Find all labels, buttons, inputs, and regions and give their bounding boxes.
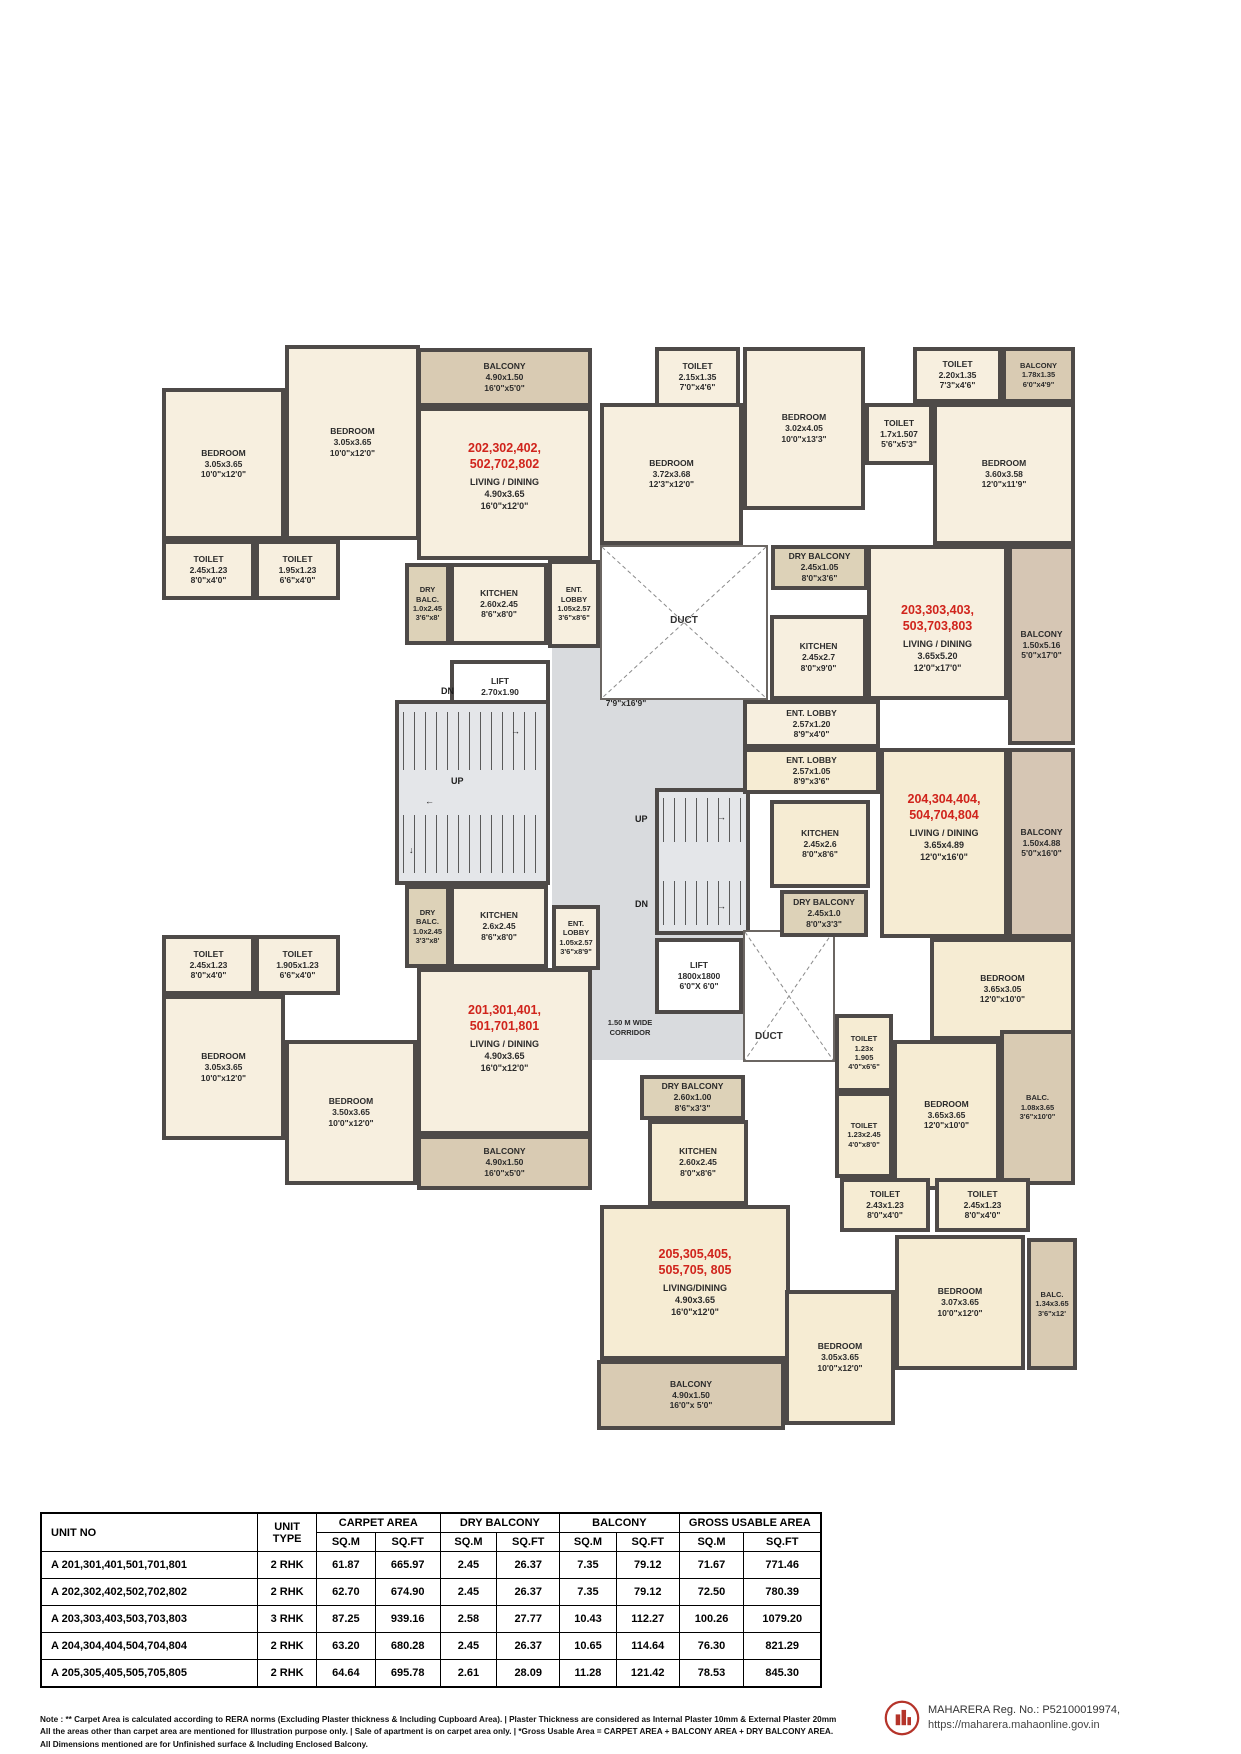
duct-label: DUCT: [755, 1031, 783, 1042]
unit-204-numbers: 204,304,404, 504,704,804: [908, 792, 981, 823]
unit-205-labels: 205,305,405, 505,705, 805 LIVING/DINING …: [600, 1205, 790, 1360]
room-balcony: BALCONY 1.50x4.88 5'0"x16'0": [1008, 748, 1075, 938]
stairs-dn-label: DN: [441, 686, 454, 696]
cell-value: 2.45: [440, 1552, 497, 1579]
duct-shaft-top: DUCT: [600, 545, 768, 700]
rera-url: https://maharera.mahaonline.gov.in: [928, 1718, 1120, 1733]
area-statement-table: UNIT NO UNIT TYPE CARPET AREA DRY BALCON…: [40, 1512, 822, 1688]
note-line-2: All the areas other than carpet area are…: [40, 1726, 840, 1738]
room-toilet: TOILET 2.15x1.35 7'0"x4'6": [655, 347, 740, 407]
cell-value: 64.64: [317, 1660, 376, 1688]
stair-flight: [663, 798, 742, 842]
room-kitchen: KITCHEN 2.60x2.45 8'6"x8'0": [450, 563, 548, 645]
cell-value: 71.67: [679, 1552, 744, 1579]
area-table-body: A 201,301,401,501,701,8012 RHK61.87665.9…: [41, 1552, 821, 1688]
unit-205-living-dining: LIVING/DINING 4.90x3.65 16'0"x12'0": [663, 1283, 727, 1318]
room-dry-balcony: DRY BALCONY 2.45x1.0 8'0"x3'3": [780, 890, 868, 937]
cell-value: 2 RHK: [258, 1552, 317, 1579]
cell-value: 939.16: [375, 1606, 440, 1633]
unit-203-numbers: 203,303,403, 503,703,803: [901, 603, 974, 634]
room-bedroom: BEDROOM 3.07x3.65 10'0"x12'0": [895, 1235, 1025, 1370]
cell-value: 121.42: [616, 1660, 679, 1688]
cell-value: 680.28: [375, 1633, 440, 1660]
table-row: A 201,301,401,501,701,8012 RHK61.87665.9…: [41, 1552, 821, 1579]
room-bedroom: BEDROOM 3.05x3.65 10'0"x12'0": [285, 345, 420, 540]
cell-value: 3 RHK: [258, 1606, 317, 1633]
room-lift: LIFT 1800x1800 6'0"X 6'0": [655, 938, 743, 1014]
cell-value: 7.35: [560, 1552, 617, 1579]
cell-value: 26.37: [497, 1552, 560, 1579]
room-bedroom: BEDROOM 3.72x3.68 12'3"x12'0": [600, 403, 743, 545]
cell-value: 2.45: [440, 1579, 497, 1606]
unit-201-living-dining: LIVING / DINING 4.90x3.65 16'0"x12'0": [470, 1039, 539, 1074]
cell-value: 2.61: [440, 1660, 497, 1688]
room-entrance-lobby: ENT. LOBBY 2.57x1.20 8'9"x4'0": [743, 700, 880, 748]
subheader-sqft: SQ.FT: [497, 1533, 560, 1552]
room-toilet: TOILET 2.45x1.23 8'0"x4'0": [162, 935, 255, 995]
room-kitchen: KITCHEN 2.45x2.7 8'0"x9'0": [770, 615, 867, 700]
room-toilet: TOILET 2.45x1.23 8'0"x4'0": [935, 1178, 1030, 1232]
stairwell-right: UP DN → →: [655, 788, 750, 935]
cell-value: 10.43: [560, 1606, 617, 1633]
cell-value: 2.58: [440, 1606, 497, 1633]
col-header-unit-no: UNIT NO: [41, 1513, 258, 1552]
stair-flight: [663, 881, 742, 925]
stairs-up-label: UP: [635, 814, 648, 824]
room-dry-balcony: DRY BALCONY 2.60x1.00 8'6"x3'3": [640, 1075, 745, 1120]
cell-value: 7.35: [560, 1579, 617, 1606]
subheader-sqm: SQ.M: [679, 1533, 744, 1552]
cell-value: 27.77: [497, 1606, 560, 1633]
col-header-balcony: BALCONY: [560, 1513, 680, 1533]
cell-value: 2 RHK: [258, 1633, 317, 1660]
room-kitchen: KITCHEN 2.60x2.45 8'0"x8'6": [648, 1120, 748, 1205]
cell-value: 674.90: [375, 1579, 440, 1606]
room-bedroom: BEDROOM 3.02x4.05 10'0"x13'3": [743, 347, 865, 510]
room-balcony: BALCONY 1.78x1.35 6'0"x4'9": [1002, 347, 1075, 403]
room-entrance-lobby: ENT. LOBBY 2.57x1.05 8'9"x3'6": [743, 748, 880, 794]
cell-value: 100.26: [679, 1606, 744, 1633]
table-row: A 205,305,405,505,705,8052 RHK64.64695.7…: [41, 1660, 821, 1688]
cell-value: 845.30: [744, 1660, 821, 1688]
cell-value: 2 RHK: [258, 1579, 317, 1606]
room-bedroom: BEDROOM 3.05x3.65 10'0"x12'0": [785, 1290, 895, 1425]
room-toilet: TOILET 1.23x 1.905 4'0"x6'6": [835, 1014, 893, 1092]
maharera-logo-icon: [884, 1700, 920, 1736]
cell-value: 28.09: [497, 1660, 560, 1688]
room-balcony: BALCONY 4.90x1.50 16'0"x 5'0": [597, 1360, 785, 1430]
duct-shaft-bottom: DUCT: [743, 930, 835, 1062]
subheader-sqft: SQ.FT: [616, 1533, 679, 1552]
table-row: A 204,304,404,504,704,8042 RHK63.20680.2…: [41, 1633, 821, 1660]
cell-value: 11.28: [560, 1660, 617, 1688]
room-dry-balcony: DRY BALC. 1.0x2.45 3'3"x8': [405, 885, 450, 968]
room-toilet: TOILET 1.95x1.23 6'6"x4'0": [255, 540, 340, 600]
unit-203-living-dining: LIVING / DINING 3.65x5.20 12'0"x17'0": [903, 639, 972, 674]
stairs-arrow-icon: →: [717, 812, 726, 822]
room-toilet: TOILET 2.20x1.35 7'3"x4'6": [913, 347, 1002, 403]
room-entrance-lobby: ENT. LOBBY 1.05x2.57 3'6"x8'9": [552, 905, 600, 970]
cell-value: 771.46: [744, 1552, 821, 1579]
stairwell-left: DN UP → ← ↓: [395, 700, 550, 885]
col-header-dry-balcony: DRY BALCONY: [440, 1513, 560, 1533]
subheader-sqft: SQ.FT: [744, 1533, 821, 1552]
room-balcony: BALC. 1.08x3.65 3'6"x10'0": [1000, 1030, 1075, 1185]
table-row: A 202,302,402,502,702,8022 RHK62.70674.9…: [41, 1579, 821, 1606]
cell-value: 112.27: [616, 1606, 679, 1633]
col-header-unit-type: UNIT TYPE: [258, 1513, 317, 1552]
room-kitchen: KITCHEN 2.6x2.45 8'6"x8'0": [450, 885, 548, 968]
corridor-label: 1.50 M WIDE CORRIDOR: [586, 1018, 674, 1038]
stairs-arrow-icon: →: [511, 726, 520, 736]
room-balcony: BALCONY 4.90x1.50 16'0"x5'0": [417, 348, 592, 407]
stairs-up-label: UP: [451, 776, 464, 786]
stairs-arrow-icon: ←: [425, 796, 434, 806]
cell-value: 72.50: [679, 1579, 744, 1606]
stairs-arrow-icon: ↓: [409, 845, 414, 855]
cell-value: 2.45: [440, 1633, 497, 1660]
subheader-sqm: SQ.M: [317, 1533, 376, 1552]
room-dry-balcony: DRY BALC. 1.0x2.45 3'6"x8': [405, 563, 450, 645]
room-toilet: TOILET 2.43x1.23 8'0"x4'0": [840, 1178, 930, 1232]
cell-value: 79.12: [616, 1552, 679, 1579]
subheader-sqft: SQ.FT: [375, 1533, 440, 1552]
cell-value: 26.37: [497, 1579, 560, 1606]
cell-value: 61.87: [317, 1552, 376, 1579]
cell-unit-no: A 205,305,405,505,705,805: [41, 1660, 258, 1688]
cell-value: 79.12: [616, 1579, 679, 1606]
footer-notes: Note : ** Carpet Area is calculated acco…: [40, 1714, 840, 1751]
room-toilet: TOILET 1.905x1.23 6'6"x4'0": [255, 935, 340, 995]
col-header-carpet-area: CARPET AREA: [317, 1513, 441, 1533]
cell-value: 63.20: [317, 1633, 376, 1660]
unit-204-living-dining: LIVING / DINING 3.65x4.89 12'0"x16'0": [909, 828, 978, 863]
room-entrance-lobby: ENT. LOBBY 1.05x2.57 3'6"x8'6": [548, 560, 600, 648]
cell-value: 76.30: [679, 1633, 744, 1660]
note-line-3: All Dimensions mentioned are for Unfinis…: [40, 1739, 840, 1751]
cell-unit-no: A 204,304,404,504,704,804: [41, 1633, 258, 1660]
unit-204-labels: 204,304,404, 504,704,804 LIVING / DINING…: [880, 748, 1008, 938]
room-bedroom: BEDROOM 3.05x3.65 10'0"x12'0": [162, 388, 285, 540]
cell-value: 78.53: [679, 1660, 744, 1688]
stair-flight: [403, 712, 542, 770]
rera-reg-no: MAHARERA Reg. No.: P52100019974,: [928, 1703, 1120, 1718]
unit-205-numbers: 205,305,405, 505,705, 805: [659, 1247, 732, 1278]
room-toilet: TOILET 2.45x1.23 8'0"x4'0": [162, 540, 255, 600]
cell-unit-no: A 202,302,402,502,702,802: [41, 1579, 258, 1606]
col-header-gross-usable-area: GROSS USABLE AREA: [679, 1513, 821, 1533]
cell-unit-no: A 203,303,403,503,703,803: [41, 1606, 258, 1633]
room-balcony: BALC. 1.34x3.65 3'6"x12': [1027, 1238, 1077, 1370]
subheader-sqm: SQ.M: [440, 1533, 497, 1552]
stairs-arrow-icon: →: [717, 901, 726, 911]
unit-202-labels: 202,302,402, 502,702,802 LIVING / DINING…: [417, 407, 592, 560]
maharera-block: MAHARERA Reg. No.: P52100019974, https:/…: [884, 1700, 1120, 1736]
cell-value: 665.97: [375, 1552, 440, 1579]
room-toilet: TOILET 1.23x2.45 4'0"x8'0": [835, 1092, 893, 1178]
subheader-sqm: SQ.M: [560, 1533, 617, 1552]
unit-203-labels: 203,303,403, 503,703,803 LIVING / DINING…: [867, 545, 1008, 700]
cell-value: 780.39: [744, 1579, 821, 1606]
cell-value: 114.64: [616, 1633, 679, 1660]
room-balcony: BALCONY 4.90x1.50 16'0"x5'0": [417, 1135, 592, 1190]
room-toilet: TOILET 1.7x1.507 5'6"x5'3": [865, 403, 933, 465]
stairs-dn-label: DN: [635, 899, 648, 909]
room-balcony: BALCONY 1.50x5.16 5'0"x17'0": [1008, 545, 1075, 745]
duct-label: DUCT: [602, 615, 766, 626]
unit-202-living-dining: LIVING / DINING 4.90x3.65 16'0"x12'0": [470, 477, 539, 512]
note-line-1: Note : ** Carpet Area is calculated acco…: [40, 1714, 840, 1726]
room-bedroom: BEDROOM 3.50x3.65 10'0"x12'0": [285, 1040, 417, 1185]
room-dry-balcony: DRY BALCONY 2.45x1.05 8'0"x3'6": [771, 545, 868, 590]
room-kitchen: KITCHEN 2.45x2.6 8'0"x8'6": [770, 800, 870, 888]
stair-flight: [403, 815, 542, 873]
cell-value: 87.25: [317, 1606, 376, 1633]
cell-value: 26.37: [497, 1633, 560, 1660]
cell-value: 695.78: [375, 1660, 440, 1688]
cell-value: 10.65: [560, 1633, 617, 1660]
unit-201-labels: 201,301,401, 501,701,801 LIVING / DINING…: [417, 968, 592, 1135]
cell-value: 2 RHK: [258, 1660, 317, 1688]
room-bedroom: BEDROOM 3.60x3.58 12'0"x11'9": [933, 403, 1075, 545]
room-bedroom: BEDROOM 3.65x3.05 12'0"x10'0": [930, 938, 1075, 1040]
unit-201-numbers: 201,301,401, 501,701,801: [468, 1003, 541, 1034]
room-bedroom: BEDROOM 3.65x3.65 12'0"x10'0": [893, 1040, 1000, 1190]
unit-202-numbers: 202,302,402, 502,702,802: [468, 441, 541, 472]
table-row: A 203,303,403,503,703,8033 RHK87.25939.1…: [41, 1606, 821, 1633]
cell-value: 1079.20: [744, 1606, 821, 1633]
cell-value: 62.70: [317, 1579, 376, 1606]
cell-value: 821.29: [744, 1633, 821, 1660]
floor-plan-page: BEDROOM 3.05x3.65 10'0"x12'0" BEDROOM 3.…: [0, 0, 1241, 1754]
room-bedroom: BEDROOM 3.05x3.65 10'0"x12'0": [162, 995, 285, 1140]
cell-unit-no: A 201,301,401,501,701,801: [41, 1552, 258, 1579]
